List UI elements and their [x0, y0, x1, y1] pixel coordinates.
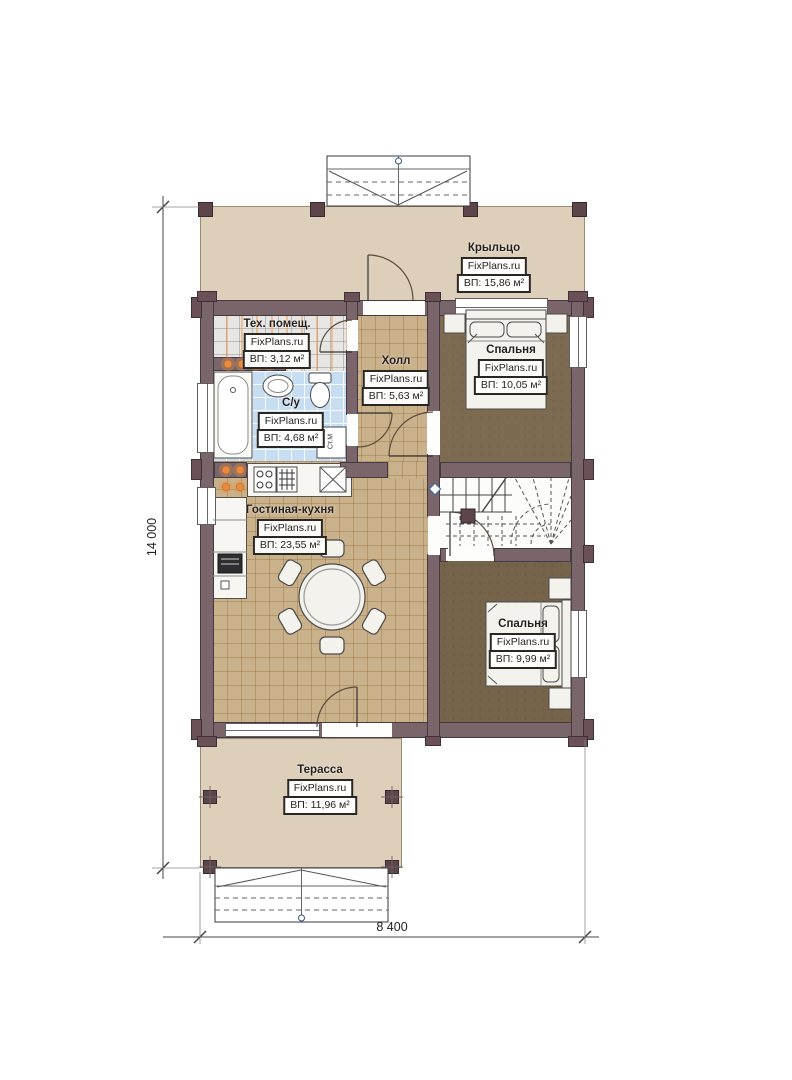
porch-post [310, 202, 325, 217]
terrace-post [385, 860, 399, 874]
bedroom-bottom-door-opening [446, 549, 494, 561]
area-box: ВП: 15,86 м² [457, 274, 531, 293]
area-box: ВП: 10,05 м² [474, 376, 548, 395]
window-living-terrace [225, 723, 320, 737]
bedroom-top-door-opening [428, 411, 440, 455]
room-name: Крыльцо [468, 242, 520, 255]
stair-corridor-opening [428, 516, 440, 555]
wall-center-2 [427, 454, 440, 517]
bottom-terrace-steps [215, 868, 388, 922]
log-stub [197, 291, 217, 302]
dimension-horizontal: 8 400 [376, 920, 407, 934]
room-name: Терасса [297, 764, 343, 777]
top-entry-steps [327, 156, 470, 206]
room-label-bedroom-top: Спальня FixPlans.ru ВП: 10,05 м² [474, 344, 548, 395]
log-stub [583, 459, 594, 480]
washing-machine-label: Ст.М [328, 427, 335, 457]
room-label-tech: Тех. помещ. FixPlans.ru ВП: 3,12 м² [243, 318, 311, 369]
log-stub [197, 736, 217, 747]
kitchen-counter-top [247, 463, 352, 497]
log-stub [568, 736, 588, 747]
room-name: С/у [282, 397, 300, 410]
floor-plan: Ст.М Крыльцо FixPlans.ru ВП: 15,86 м² Те… [0, 0, 792, 1080]
log-stub [583, 545, 594, 563]
wall-mid-left-stub [214, 462, 247, 478]
porch-post [198, 202, 213, 217]
room-name: Холл [382, 355, 411, 368]
area-box: ВП: 11,96 м² [283, 796, 357, 815]
wall-tech-hall-2 [346, 350, 358, 415]
terrace-post [385, 790, 399, 804]
room-name: Спальня [486, 344, 536, 357]
log-stub [344, 292, 360, 302]
dimension-vertical: 14 000 [145, 518, 159, 556]
room-label-hall: Холл FixPlans.ru ВП: 5,63 м² [362, 355, 430, 406]
wall-stair-bedroom [494, 548, 571, 562]
area-box: ВП: 5,63 м² [362, 387, 430, 406]
entrance-door-opening [363, 301, 425, 315]
room-label-living-kitchen: Гостиная-кухня FixPlans.ru ВП: 23,55 м² [246, 504, 334, 555]
window-left-bathroom [197, 383, 216, 453]
terrace-post [203, 790, 217, 804]
terrace-door-opening [322, 723, 392, 737]
wall-center-3 [427, 554, 440, 738]
room-label-bedroom-bottom: Спальня FixPlans.ru ВП: 9,99 м² [489, 618, 557, 669]
porch-post [572, 202, 587, 217]
kitchen-counter-left [213, 497, 247, 599]
log-stub [425, 292, 441, 302]
wall-tech-hall-1 [346, 300, 358, 322]
room-label-porch: Крыльцо FixPlans.ru ВП: 15,86 м² [457, 242, 531, 293]
log-stub [191, 459, 202, 480]
wall-mid-center [340, 462, 388, 478]
area-box: ВП: 23,55 м² [253, 536, 327, 555]
log-stub [568, 291, 588, 302]
room-name: Гостиная-кухня [246, 504, 334, 517]
tech-door-opening [347, 320, 358, 351]
room-label-bathroom: С/у FixPlans.ru ВП: 4,68 м² [257, 397, 325, 448]
window-left-kitchen [197, 487, 216, 525]
terrace-post [203, 860, 217, 874]
window-right-bedroom-bottom [569, 610, 587, 678]
area-box: ВП: 3,12 м² [243, 350, 311, 369]
porch-post [463, 202, 478, 217]
room-name: Тех. помещ. [243, 318, 310, 331]
room-label-terrace: Терасса FixPlans.ru ВП: 11,96 м² [283, 764, 357, 815]
wall-mid-right [440, 462, 571, 478]
room-name: Спальня [498, 618, 548, 631]
log-stub [425, 736, 441, 746]
area-box: ВП: 9,99 м² [489, 650, 557, 669]
area-box: ВП: 4,68 м² [257, 429, 325, 448]
window-right-bedroom-top [569, 316, 587, 368]
bathroom-door-opening [347, 414, 358, 446]
staircase-floor [440, 477, 571, 549]
window-porch-bedroom [455, 298, 548, 316]
